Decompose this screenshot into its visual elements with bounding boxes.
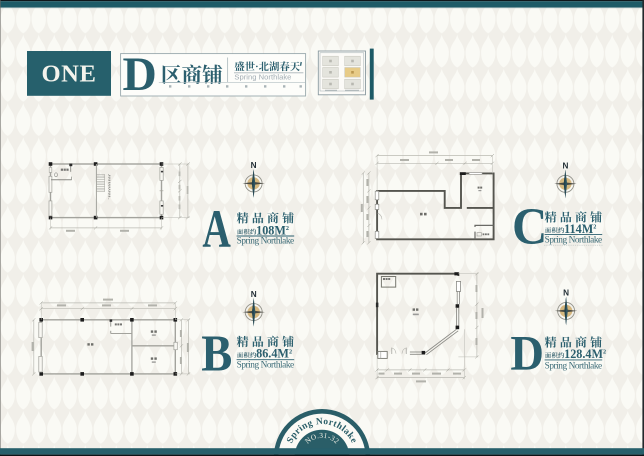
- svg-text:D: D: [123, 49, 157, 101]
- svg-text:ONE: ONE: [41, 61, 96, 88]
- svg-text:Spring Northlake: Spring Northlake: [234, 72, 291, 81]
- svg-text:Spring Northlake: Spring Northlake: [545, 361, 603, 371]
- svg-text:N: N: [251, 161, 257, 170]
- svg-text:86.4M2: 86.4M2: [256, 347, 292, 361]
- svg-text:114M2: 114M2: [564, 222, 596, 236]
- svg-text:Spring Northlake: Spring Northlake: [545, 236, 603, 246]
- svg-text:B: B: [201, 325, 232, 383]
- svg-text:108M2: 108M2: [256, 223, 289, 237]
- svg-text:128.4M2: 128.4M2: [564, 347, 606, 361]
- svg-text:N: N: [251, 290, 257, 299]
- svg-text:C: C: [512, 197, 547, 254]
- svg-text:N: N: [563, 289, 569, 298]
- svg-text:D: D: [510, 326, 544, 381]
- svg-text:Spring Northlake: Spring Northlake: [237, 236, 295, 246]
- svg-text:N: N: [562, 162, 568, 171]
- svg-text:A: A: [202, 200, 230, 259]
- svg-text:Spring Northlake: Spring Northlake: [237, 360, 295, 370]
